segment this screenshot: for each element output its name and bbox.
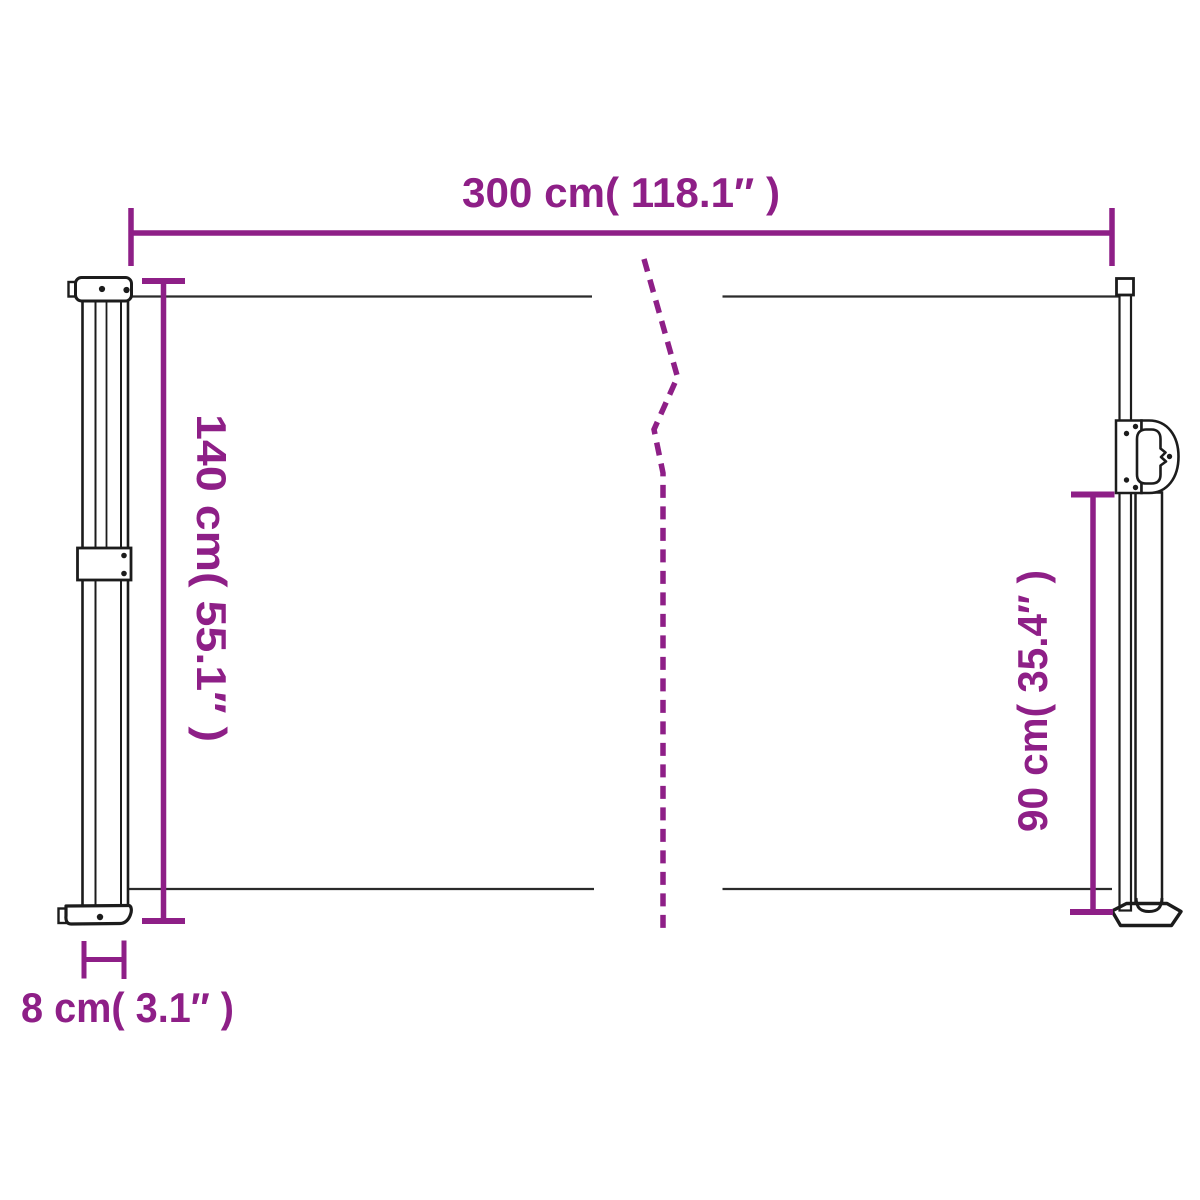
handle-screw-dot [1133,485,1138,490]
awning-fabric-lines [129,297,1119,890]
cap-screw-dot [99,286,105,292]
post-thin-profile [1120,295,1132,911]
post-base-plate [1112,904,1181,926]
height-left-label: 140 cm( 55.1″ ) [188,414,235,742]
dimension-width: 300 cm( 118.1″ ) [131,169,1112,266]
bracket-screw-dot [121,571,127,577]
dimension-height-left: 140 cm( 55.1″ ) [142,281,235,921]
foot-screw-dot [97,914,103,920]
diagram-canvas: 300 cm( 118.1″ ) 140 cm( 55.1″ ) 90 cm( … [0,0,1200,1200]
post-top-cap [1117,279,1134,296]
dimension-height-right: 90 cm( 35.4″ ) [1009,495,1115,913]
left-cassette-housing [59,278,132,925]
width-label: 300 cm( 118.1″ ) [462,169,780,216]
cap-screw-dot [123,287,129,293]
handle-screw-dot [1124,477,1129,482]
post-wide-tube [1136,493,1163,904]
height-right-label: 90 cm( 35.4″ ) [1009,570,1056,832]
awning-dimension-diagram: 300 cm( 118.1″ ) 140 cm( 55.1″ ) 90 cm( … [0,0,1200,1200]
bracket-screw-dot [121,553,127,559]
break-line [644,259,678,931]
handle-screw-dot [1133,424,1138,429]
right-pull-post [1112,279,1181,926]
depth-label: 8 cm( 3.1″ ) [21,984,234,1031]
handle-screw-dot [1167,454,1172,459]
handle-screw-dot [1124,431,1129,436]
handle-grip-cutout [1137,430,1166,484]
dimension-depth: 8 cm( 3.1″ ) [21,941,234,1032]
